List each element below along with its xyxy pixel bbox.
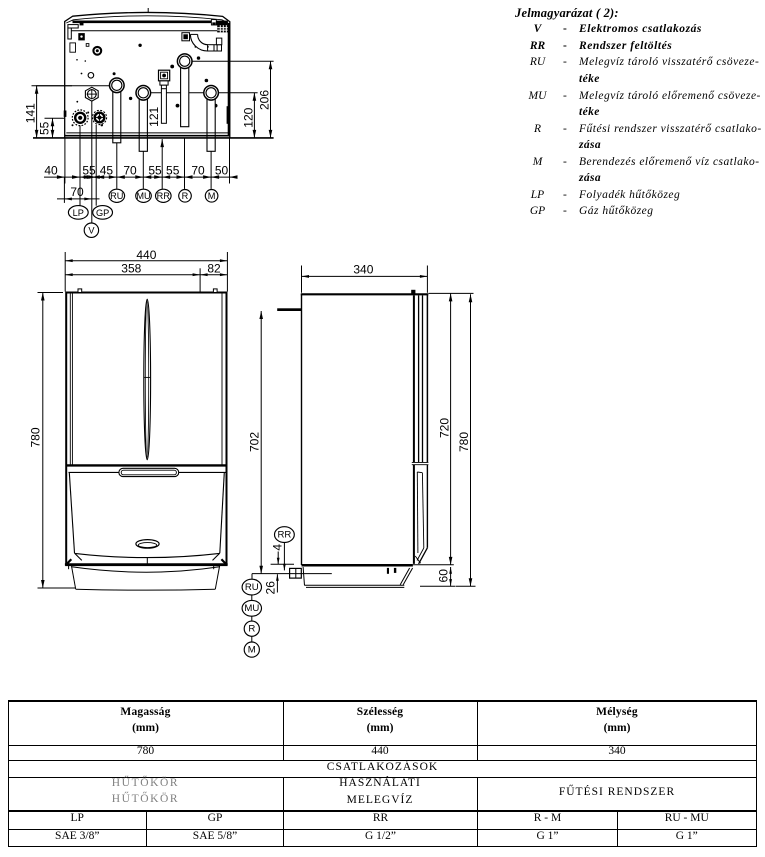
svg-text:55: 55	[148, 164, 162, 178]
svg-text:55: 55	[82, 164, 96, 178]
svg-text:26: 26	[264, 581, 278, 595]
svg-text:MU: MU	[244, 603, 259, 614]
svg-text:50: 50	[215, 164, 229, 178]
svg-text:60: 60	[437, 569, 451, 583]
svg-text:GP: GP	[96, 208, 109, 218]
svg-text:70: 70	[191, 164, 205, 178]
svg-text:121: 121	[147, 106, 161, 126]
svg-text:55: 55	[166, 164, 180, 178]
svg-text:R: R	[182, 191, 189, 201]
svg-text:141: 141	[23, 103, 37, 123]
svg-text:358: 358	[121, 261, 141, 275]
svg-text:70: 70	[123, 164, 137, 178]
svg-text:M: M	[208, 191, 216, 201]
svg-text:RU: RU	[245, 582, 259, 593]
svg-text:780: 780	[457, 432, 471, 452]
svg-text:720: 720	[438, 418, 452, 438]
svg-text:MU: MU	[136, 191, 150, 201]
svg-text:440: 440	[136, 248, 156, 262]
svg-text:702: 702	[247, 432, 261, 452]
svg-text:45: 45	[100, 164, 114, 178]
svg-text:340: 340	[353, 263, 373, 277]
svg-text:LP: LP	[73, 208, 84, 218]
svg-text:RR: RR	[157, 191, 171, 201]
svg-text:40: 40	[44, 164, 58, 178]
svg-text:55: 55	[37, 121, 51, 135]
svg-text:4: 4	[271, 544, 285, 551]
svg-text:780: 780	[28, 427, 42, 447]
svg-text:82: 82	[207, 261, 221, 275]
svg-text:V: V	[88, 226, 95, 236]
svg-text:M: M	[248, 645, 256, 656]
svg-text:R: R	[248, 624, 255, 635]
svg-text:RU: RU	[110, 191, 123, 201]
svg-text:120: 120	[242, 107, 256, 127]
svg-text:RR: RR	[277, 530, 291, 541]
svg-text:206: 206	[257, 90, 271, 110]
svg-text:70: 70	[70, 185, 84, 199]
